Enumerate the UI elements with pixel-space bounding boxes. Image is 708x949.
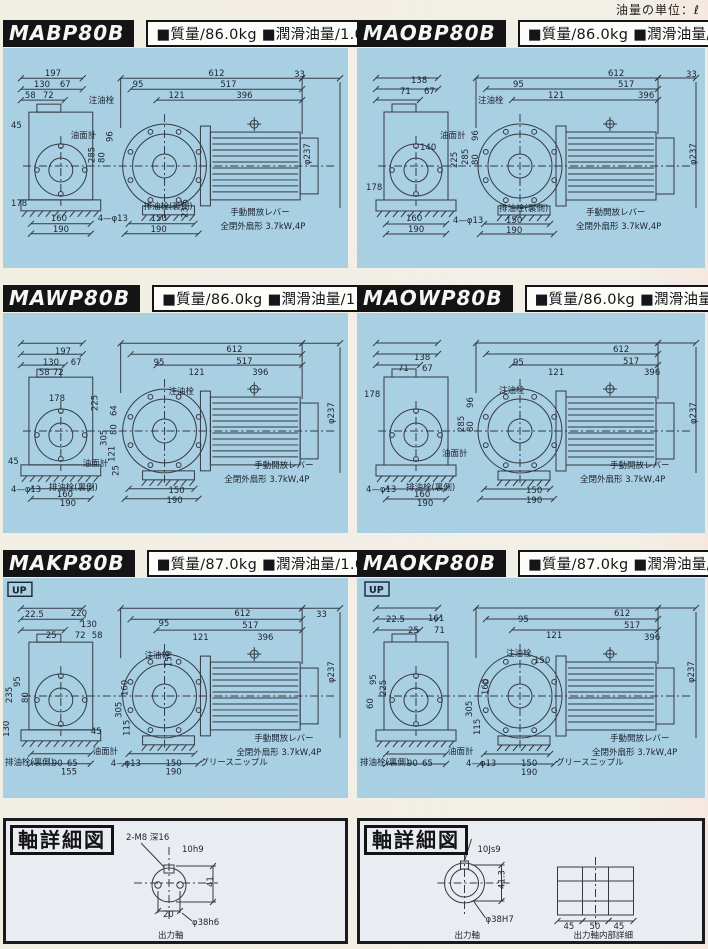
dim-label: 4—φ13 bbox=[366, 485, 396, 495]
model-panel-maokp80b: MAOKP80B ■質量/87.0kg ■潤滑油量/1.0 UP22.51612… bbox=[357, 550, 705, 798]
dimension-drawing-area: UP22.52201302572589512161233517396注油栓150… bbox=[3, 578, 348, 798]
model-name: MAOBP80B bbox=[357, 20, 506, 47]
dim-label: 油面計 bbox=[442, 448, 468, 459]
dim-label: 手動開放レバー bbox=[230, 207, 289, 217]
dim-label: 95 bbox=[513, 80, 524, 90]
dim-label: 71 bbox=[398, 364, 409, 374]
dim-label: 96 bbox=[466, 397, 476, 408]
dim-label: 178 bbox=[366, 183, 382, 193]
dim-label: 10Js9 bbox=[478, 845, 501, 855]
dim-label: 220 bbox=[71, 608, 87, 618]
dim-label: 45 bbox=[8, 456, 19, 466]
dim-label: 33 bbox=[316, 609, 327, 619]
dim-labels: 19713067587245注油栓油面計95121612335173962858… bbox=[11, 68, 312, 234]
dim-label: 排油栓(裏側) bbox=[499, 203, 548, 214]
panel-header: MAKP80B ■質量/87.0kg ■潤滑油量/1.0 bbox=[3, 550, 348, 577]
dim-label: 25 bbox=[408, 626, 419, 636]
dim-label: 160 bbox=[51, 213, 67, 223]
oil-unit-note: 油量の単位：ℓ bbox=[616, 1, 700, 18]
dim-label: 手動開放レバー bbox=[586, 207, 646, 218]
dim-label: 160 bbox=[120, 680, 130, 696]
dim-label: 396 bbox=[644, 633, 660, 643]
dimension-drawing-area: 1387167注油栓油面計140951216123351739622528580… bbox=[357, 48, 705, 268]
dim-label: 197 bbox=[55, 346, 71, 356]
dim-label: φ237 bbox=[689, 402, 699, 424]
dim-label: グリースニップル bbox=[556, 757, 624, 768]
dim-label: 注油栓 bbox=[89, 95, 115, 105]
dim-label: 58 bbox=[39, 367, 50, 377]
dim-label: 130 bbox=[43, 357, 59, 367]
dim-label: 60 bbox=[366, 698, 376, 709]
dim-label: 90 bbox=[407, 759, 418, 769]
dim-label: 72 bbox=[75, 630, 86, 640]
dim-label: 517 bbox=[242, 620, 258, 630]
dim-label: 396 bbox=[257, 632, 273, 642]
dim-label: 138 bbox=[414, 353, 430, 363]
dim-label: 手動開放レバー bbox=[254, 733, 313, 743]
dim-label: 64 bbox=[109, 405, 119, 416]
dim-label: 121 bbox=[188, 367, 204, 377]
dim-label: 517 bbox=[618, 80, 634, 90]
panel-header: MAOKP80B ■質量/87.0kg ■潤滑油量/1.0 bbox=[357, 550, 705, 577]
dim-label: 612 bbox=[208, 68, 224, 78]
spec-text: ■質量/86.0kg ■潤滑油量/1.3 bbox=[535, 288, 708, 309]
dim-label: 612 bbox=[234, 608, 250, 618]
dim-label: 58 bbox=[92, 630, 103, 640]
spec-text: ■質量/87.0kg ■潤滑油量/1.0 bbox=[157, 553, 365, 574]
dim-label: φ237 bbox=[687, 661, 697, 683]
dim-label: 225 bbox=[450, 152, 460, 168]
dim-label: φ237 bbox=[326, 402, 336, 424]
dim-label: 全閉外扇形 3.7kW,4P bbox=[236, 747, 321, 757]
dim-label: 全閉外扇形 3.7kW,4P bbox=[580, 474, 665, 485]
dim-label: 178 bbox=[364, 390, 380, 400]
dimension-drawing-area: 19713067587245注油栓油面計95121612335173962858… bbox=[3, 48, 348, 268]
spec-text: ■質量/86.0kg ■潤滑油量/1.0 bbox=[528, 23, 708, 44]
dim-label: 150 bbox=[506, 216, 522, 226]
dim-label: 58 bbox=[25, 90, 36, 100]
dim-label: 20 bbox=[163, 910, 174, 920]
dim-label: 121 bbox=[169, 90, 185, 100]
spec-box: ■質量/86.0kg ■潤滑油量/1.3 bbox=[525, 285, 708, 312]
dim-label: 612 bbox=[613, 345, 629, 355]
dim-label: 190 bbox=[526, 496, 542, 506]
dim-label: 225 bbox=[379, 680, 389, 696]
dim-label: 手動開放レバー bbox=[610, 733, 670, 744]
dim-label: 油面計 bbox=[93, 746, 119, 756]
dim-label: 150 bbox=[164, 651, 174, 667]
dimension-drawing-svg: 19713067587245注油栓油面計95121612335173962858… bbox=[3, 48, 348, 268]
dim-label: 注油栓 bbox=[478, 95, 504, 106]
dimension-drawing-svg: UP22.52201302572589512161233517396注油栓150… bbox=[3, 578, 348, 798]
dim-label: 注油栓 bbox=[506, 648, 532, 659]
model-name: MAKP80B bbox=[3, 550, 135, 577]
dim-labels: 19713067587217822595121612517396注油栓64803… bbox=[8, 344, 336, 508]
dim-label: 396 bbox=[644, 368, 660, 378]
dim-label: 190 bbox=[167, 495, 183, 505]
dim-label: 95 bbox=[12, 676, 22, 687]
dim-label: 121 bbox=[548, 368, 564, 378]
shaft-detail-panel-right: 10Js941.3φ38H7出力軸455045出力軸内部詳細 軸詳細図 bbox=[357, 818, 705, 944]
dim-label: φ38H7 bbox=[486, 915, 514, 925]
dim-label: 396 bbox=[236, 90, 252, 100]
dim-label: 517 bbox=[236, 356, 252, 366]
dim-label: 160 bbox=[406, 214, 422, 224]
dim-label: 305 bbox=[465, 701, 475, 717]
dim-label: φ237 bbox=[326, 661, 336, 683]
dim-label: 出力軸 bbox=[455, 930, 481, 941]
panel-header: MAOBP80B ■質量/86.0kg ■潤滑油量/1.0 bbox=[357, 20, 705, 47]
panel-header: MABP80B ■質量/86.0kg ■潤滑油量/1.0 bbox=[3, 20, 348, 47]
dim-label: 190 bbox=[408, 225, 424, 235]
dim-label: 517 bbox=[623, 357, 639, 367]
dim-label: 71 bbox=[400, 87, 411, 97]
dim-label: 45 bbox=[11, 120, 22, 130]
dim-label: 22.5 bbox=[386, 615, 405, 625]
shaft-detail-title: 軸詳細図 bbox=[364, 825, 468, 855]
dim-label: 190 bbox=[151, 224, 167, 234]
model-name: MAWP80B bbox=[3, 285, 140, 312]
model-panel-mawp80b: MAWP80B ■質量/86.0kg ■潤滑油量/1.3 19713067587… bbox=[3, 285, 348, 533]
dim-label: 4—φ13 bbox=[11, 484, 41, 494]
dim-label: 150 bbox=[526, 486, 542, 496]
dim-label: 150 bbox=[169, 485, 185, 495]
dim-label: 10h9 bbox=[182, 845, 204, 855]
dim-label: 33 bbox=[294, 69, 305, 79]
model-panel-mabp80b: MABP80B ■質量/86.0kg ■潤滑油量/1.0 19713067587… bbox=[3, 20, 348, 268]
dim-label: 全閉外扇形 3.7kW,4P bbox=[224, 474, 309, 484]
dim-label: 130 bbox=[34, 79, 50, 89]
dim-label: 油面計 bbox=[448, 746, 474, 757]
panel-header: MAOWP80B ■質量/86.0kg ■潤滑油量/1.3 bbox=[357, 285, 705, 312]
dim-label: 197 bbox=[45, 68, 61, 78]
dim-label: 4—φ13 bbox=[98, 213, 128, 223]
dim-label: 71 bbox=[434, 626, 445, 636]
dim-label: 油面計 bbox=[83, 458, 109, 468]
dim-label: 72 bbox=[43, 90, 54, 100]
dim-label: 190 bbox=[60, 498, 76, 508]
dimension-drawing-svg: 19713067587217822595121612517396注油栓64803… bbox=[3, 313, 348, 533]
dim-label: φ237 bbox=[689, 143, 699, 165]
dim-label: 96 bbox=[105, 131, 115, 142]
dim-label: 138 bbox=[411, 76, 427, 86]
dim-label: 注油栓 bbox=[169, 386, 195, 396]
dim-label: 手動開放レバー bbox=[610, 460, 670, 471]
dim-label: 22.5 bbox=[25, 609, 44, 619]
dim-label: 全閉外扇形 3.7kW,4P bbox=[576, 221, 661, 232]
dim-label: 67 bbox=[422, 364, 433, 374]
shaft-detail-title: 軸詳細図 bbox=[10, 825, 114, 855]
model-panel-maowp80b: MAOWP80B ■質量/86.0kg ■潤滑油量/1.3 1387167951… bbox=[357, 285, 705, 533]
dim-label: 517 bbox=[220, 79, 236, 89]
dim-label: 121 bbox=[107, 446, 117, 462]
dim-label: 517 bbox=[624, 621, 640, 631]
spec-box: ■質量/86.0kg ■潤滑油量/1.3 bbox=[152, 285, 380, 312]
dim-label: 80 bbox=[20, 692, 30, 703]
dim-label: 油面計 bbox=[440, 130, 466, 141]
dim-label: 150 bbox=[534, 656, 550, 666]
dim-label: 285 bbox=[87, 147, 97, 163]
model-panel-makp80b: MAKP80B ■質量/87.0kg ■潤滑油量/1.0 UP22.522013… bbox=[3, 550, 348, 798]
dim-label: 190 bbox=[521, 768, 537, 778]
dim-label: 612 bbox=[614, 609, 630, 619]
dim-label: φ38h6 bbox=[192, 918, 219, 928]
dim-label: 95 bbox=[159, 618, 170, 628]
dim-label: 121 bbox=[192, 632, 208, 642]
dim-label: 190 bbox=[417, 499, 433, 509]
dim-label: 67 bbox=[60, 79, 71, 89]
dim-label: 305 bbox=[114, 702, 124, 718]
dimension-drawing-svg: UP22.5161257195121612517396注油栓1509522560… bbox=[357, 578, 705, 798]
dim-label: 67 bbox=[424, 87, 435, 97]
spec-text: ■質量/86.0kg ■潤滑油量/1.3 bbox=[162, 288, 370, 309]
dim-label: 排油栓(裏側) bbox=[144, 201, 193, 211]
dim-label: 95 bbox=[154, 357, 165, 367]
dim-label: 178 bbox=[11, 198, 27, 208]
dim-label: 130 bbox=[3, 721, 11, 737]
dim-label: 95 bbox=[513, 358, 524, 368]
dim-label: 出力軸 bbox=[158, 930, 184, 941]
dim-label: 25 bbox=[46, 630, 57, 640]
dim-label: グリースニップル bbox=[200, 757, 268, 767]
spec-box: ■質量/86.0kg ■潤滑油量/1.0 bbox=[518, 20, 708, 47]
dim-label: 注油栓 bbox=[499, 385, 525, 396]
dim-label: 出力軸内部詳細 bbox=[574, 930, 634, 941]
dim-label: 油面計 bbox=[71, 130, 97, 140]
dim-label: 115 bbox=[122, 720, 132, 736]
model-name: MABP80B bbox=[3, 20, 134, 47]
dim-label: 排油栓(裏側) bbox=[360, 757, 409, 768]
dim-label: 612 bbox=[608, 69, 624, 79]
dim-label: 115 bbox=[473, 719, 483, 735]
dim-label: 2-M8 深16 bbox=[126, 833, 169, 843]
spec-box: ■質量/87.0kg ■潤滑油量/1.0 bbox=[518, 550, 708, 577]
dim-label: 96 bbox=[471, 130, 481, 141]
dim-label: 396 bbox=[252, 367, 268, 377]
dim-label: 25 bbox=[111, 465, 121, 476]
dim-labels: 2-M8 深1610h94120φ38h6出力軸 bbox=[126, 833, 219, 941]
up-marker: UP bbox=[12, 585, 27, 596]
dim-label: 41 bbox=[206, 876, 216, 887]
dim-label: 190 bbox=[506, 226, 522, 236]
model-panel-maobp80b: MAOBP80B ■質量/86.0kg ■潤滑油量/1.0 1387167注油栓… bbox=[357, 20, 705, 268]
dim-label: 140 bbox=[420, 143, 436, 153]
spec-text: ■質量/86.0kg ■潤滑油量/1.0 bbox=[156, 23, 364, 44]
dim-label: 130 bbox=[81, 619, 97, 629]
dimension-drawing-area: 19713067587217822595121612517396注油栓64803… bbox=[3, 313, 348, 533]
dim-label: 160 bbox=[481, 679, 491, 695]
up-marker: UP bbox=[369, 585, 384, 596]
dim-label: 95 bbox=[369, 674, 379, 685]
dim-label: 121 bbox=[546, 631, 562, 641]
panel-header: MAWP80B ■質量/86.0kg ■潤滑油量/1.3 bbox=[3, 285, 348, 312]
spec-text: ■質量/87.0kg ■潤滑油量/1.0 bbox=[528, 553, 708, 574]
spec-box: ■質量/86.0kg ■潤滑油量/1.0 bbox=[146, 20, 374, 47]
dim-label: 全閉外扇形 3.7kW,4P bbox=[220, 221, 305, 231]
dim-label: 155 bbox=[61, 767, 77, 777]
dim-label: 161 bbox=[428, 614, 444, 624]
dimension-drawing-svg: 1387167注油栓油面計140951216123351739622528580… bbox=[357, 48, 705, 268]
model-name: MAOKP80B bbox=[357, 550, 506, 577]
dim-label: 285 bbox=[461, 149, 471, 165]
model-name: MAOWP80B bbox=[357, 285, 513, 312]
dim-label: 手動開放レバー bbox=[254, 460, 313, 470]
dim-label: φ237 bbox=[302, 143, 312, 165]
spec-box: ■質量/87.0kg ■潤滑油量/1.0 bbox=[147, 550, 375, 577]
dim-label: 95 bbox=[518, 615, 529, 625]
dim-label: 225 bbox=[90, 395, 100, 411]
dimension-drawing-area: UP22.5161257195121612517396注油栓1509522560… bbox=[357, 578, 705, 798]
dim-label: 全閉外扇形 3.7kW,4P bbox=[592, 747, 677, 758]
dim-label: 80 bbox=[471, 154, 481, 165]
dim-label: 80 bbox=[466, 421, 476, 432]
dim-label: 排油栓(裏側) bbox=[5, 757, 54, 767]
dim-label: 41.3 bbox=[498, 870, 508, 889]
dim-label: 150 bbox=[151, 213, 167, 223]
dim-label: 65 bbox=[422, 759, 433, 769]
dim-label: 305 bbox=[99, 430, 109, 446]
dim-label: 72 bbox=[53, 367, 64, 377]
dim-label: 121 bbox=[548, 91, 564, 101]
dimension-drawing-area: 138716795121612517396注油栓178φ2372858096油面… bbox=[357, 313, 705, 533]
shaft-detail-panel-left: 2-M8 深1610h94120φ38h6出力軸 軸詳細図 bbox=[3, 818, 348, 944]
dim-label: 178 bbox=[49, 393, 65, 403]
dim-label: 396 bbox=[638, 91, 654, 101]
dim-label: 190 bbox=[166, 767, 182, 777]
dim-label: 45 bbox=[91, 726, 102, 736]
dim-label: 67 bbox=[71, 357, 82, 367]
dim-label: 80 bbox=[97, 152, 107, 163]
dim-label: 4—φ13 bbox=[453, 216, 483, 226]
dim-label: 80 bbox=[109, 424, 119, 435]
dim-label: 95 bbox=[133, 79, 144, 89]
dimension-drawing-svg: 138716795121612517396注油栓178φ2372858096油面… bbox=[357, 313, 705, 533]
dim-label: 235 bbox=[4, 687, 14, 703]
dim-label: 33 bbox=[686, 70, 697, 80]
dim-label: 190 bbox=[53, 224, 69, 234]
dim-label: 4—φ13 bbox=[111, 758, 141, 768]
dim-label: 4—φ13 bbox=[466, 759, 496, 769]
catalog-page: 油量の単位：ℓ MABP80B ■質量/86.0kg ■潤滑油量/1.0 197… bbox=[0, 0, 708, 949]
dim-label: 612 bbox=[226, 344, 242, 354]
